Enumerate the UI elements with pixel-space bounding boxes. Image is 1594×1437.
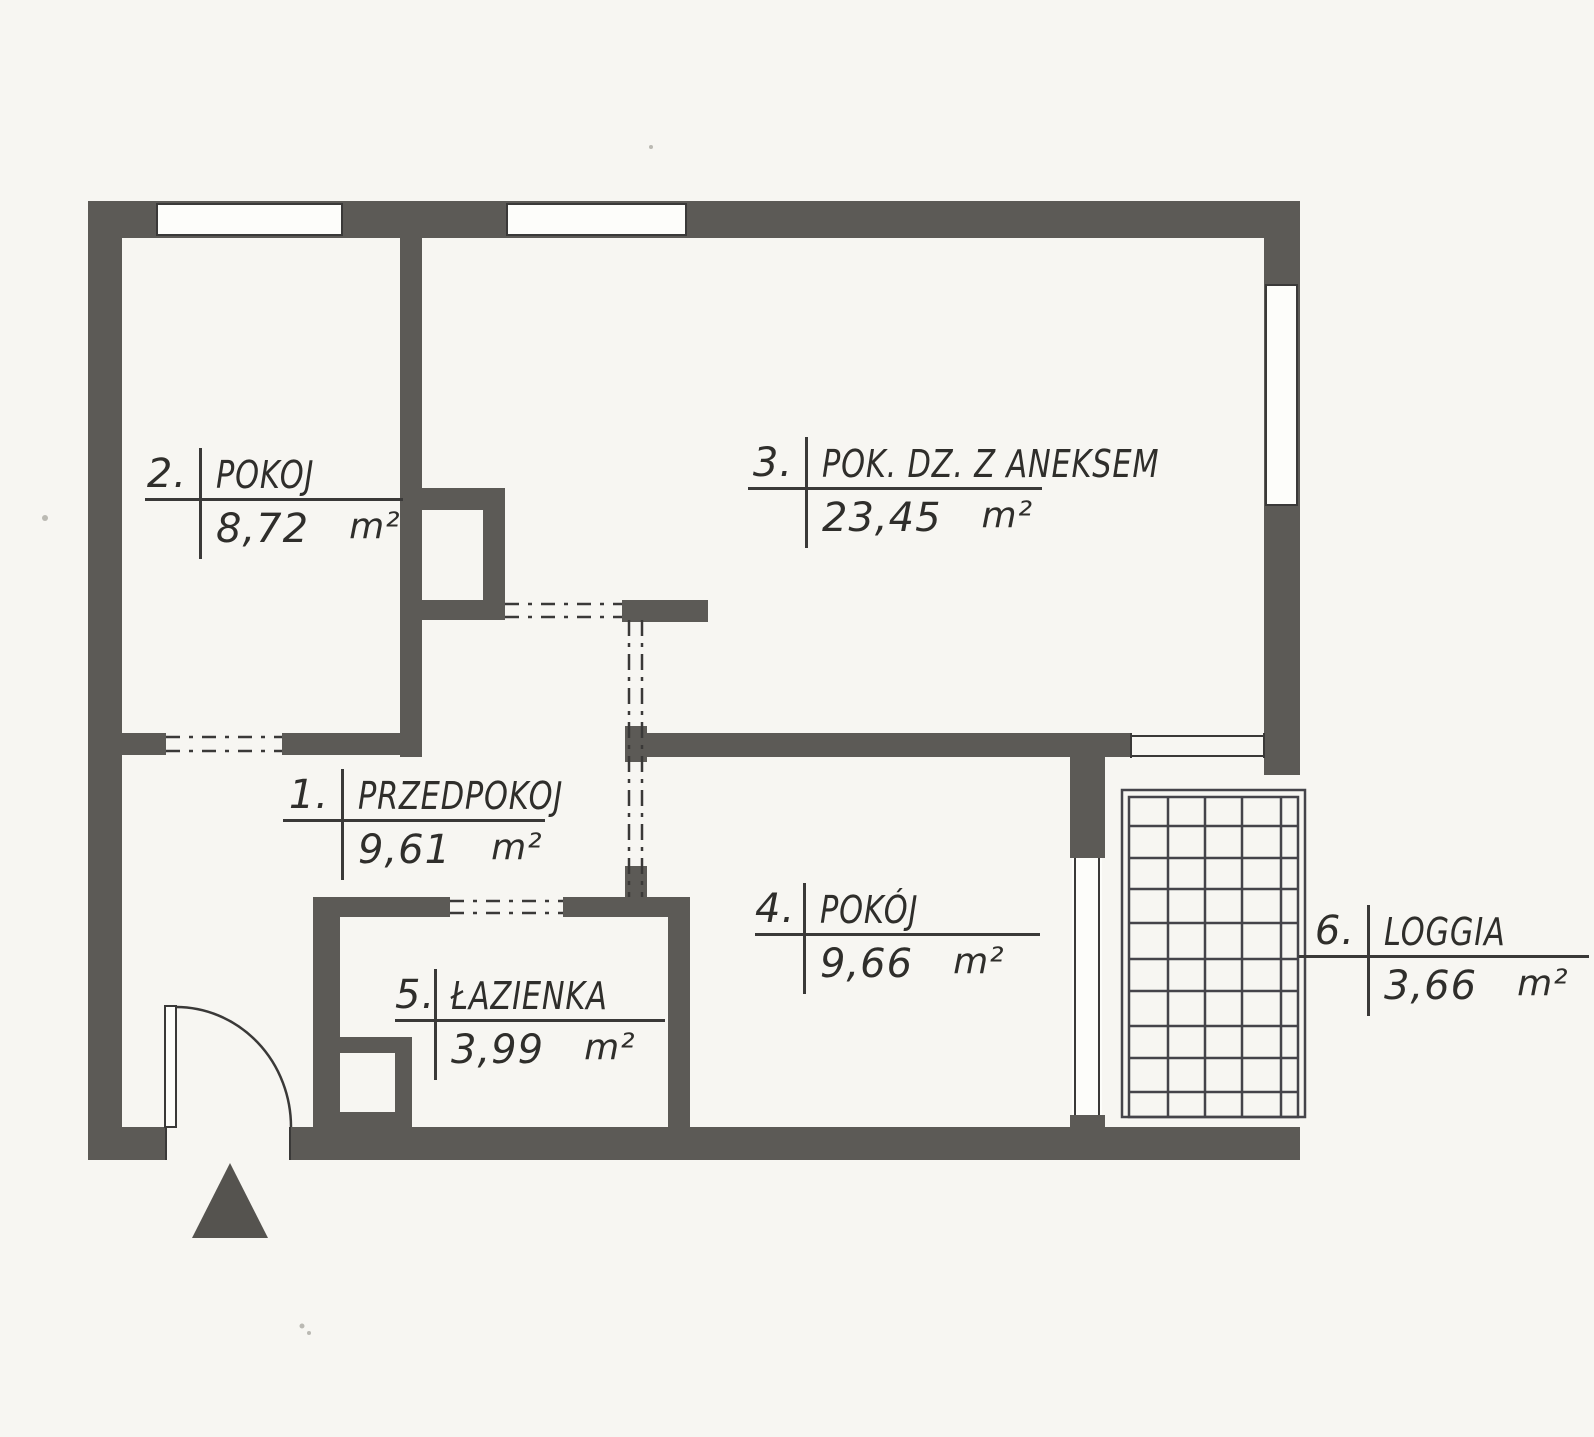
room-name: ŁAZIENKA <box>434 969 647 1019</box>
entrance-door <box>165 1006 291 1160</box>
room-area-unit: m² <box>491 830 543 866</box>
wall-room2-right <box>400 238 422 757</box>
wall-bath-left <box>313 897 340 1037</box>
window-room2-top <box>157 204 342 235</box>
room-label-pok-dz-z-aneksem: 3. POK. DZ. Z ANEKSEM 23,45 m² <box>748 431 1042 548</box>
room-area-unit: m² <box>1517 966 1569 1002</box>
room-area: 8,72 <box>216 509 309 549</box>
room-area-unit: m² <box>349 509 401 545</box>
opening-room2-door <box>166 737 282 751</box>
room-area: 9,66 <box>820 944 913 984</box>
room-name: POKÓJ <box>803 883 943 933</box>
loggia-door-opening <box>1131 733 1264 758</box>
room-label-lazienka: 5. ŁAZIENKA 3,99 m² <box>395 963 665 1080</box>
opening-hall-room3-pass <box>505 604 622 617</box>
room-number: 5. <box>395 975 434 1019</box>
room-number: 1. <box>283 775 341 819</box>
room-number: 3. <box>748 443 805 487</box>
room-area: 9,61 <box>358 830 451 870</box>
wall-room3-room4 <box>630 733 1131 757</box>
room-label-pokoj-2: 2. POKOJ 8,72 m² <box>145 442 403 559</box>
room-area: 3,66 <box>1384 966 1477 1006</box>
room-area: 23,45 <box>822 498 942 538</box>
floor-plan-page: 1. PRZEDPOKOJ 9,61 m² 2. POKOJ 8,72 m² 3… <box>0 0 1594 1437</box>
room-number: 4. <box>755 889 803 933</box>
window-room4-loggia <box>1072 858 1102 1115</box>
wall-room2-bottom-b <box>282 733 422 755</box>
room-label-pokoj-4: 4. POKÓJ 9,66 m² <box>755 877 1040 994</box>
loggia-grid <box>1122 790 1305 1117</box>
wall-room2-bottom-a <box>122 733 166 755</box>
room-area: 3,99 <box>451 1030 544 1070</box>
room-area-unit: m² <box>982 498 1034 534</box>
floor-plan-drawing <box>0 0 1594 1437</box>
entrance-gap <box>166 1127 290 1160</box>
wall-bath-right <box>668 897 690 1127</box>
entrance-arrow-icon <box>192 1163 268 1238</box>
room-number: 6. <box>1299 911 1367 955</box>
opening-bathroom-door <box>450 901 563 913</box>
entrance-door-swing-arc <box>176 1007 291 1127</box>
room-number: 2. <box>145 454 199 498</box>
exterior-walls <box>88 201 1300 1160</box>
room-area-unit: m² <box>953 944 1005 980</box>
duct-shaft-upper-hole <box>422 510 483 600</box>
wall-left <box>88 201 122 1160</box>
wall-hall-room3-stub <box>622 600 708 622</box>
room-name: POK. DZ. Z ANEKSEM <box>805 437 1244 487</box>
window-room3-top <box>507 204 686 235</box>
room-name: PRZEDPOKOJ <box>341 769 614 819</box>
window-room3-right <box>1266 285 1297 505</box>
room-name: POKOJ <box>199 448 339 498</box>
room-name: LOGGIA <box>1367 905 1536 955</box>
wall-room4-loggia-column <box>1070 733 1105 858</box>
room-area-unit: m² <box>584 1030 636 1066</box>
wall-bath-top-a <box>313 897 450 917</box>
room-label-loggia: 6. LOGGIA 3,66 m² <box>1299 899 1589 1016</box>
duct-shaft-bath-hole <box>340 1053 395 1112</box>
entrance-door-leaf <box>165 1006 176 1127</box>
room-label-przedpokoj: 1. PRZEDPOKOJ 9,61 m² <box>283 763 545 880</box>
wall-room4-loggia-stub <box>1070 1115 1105 1129</box>
